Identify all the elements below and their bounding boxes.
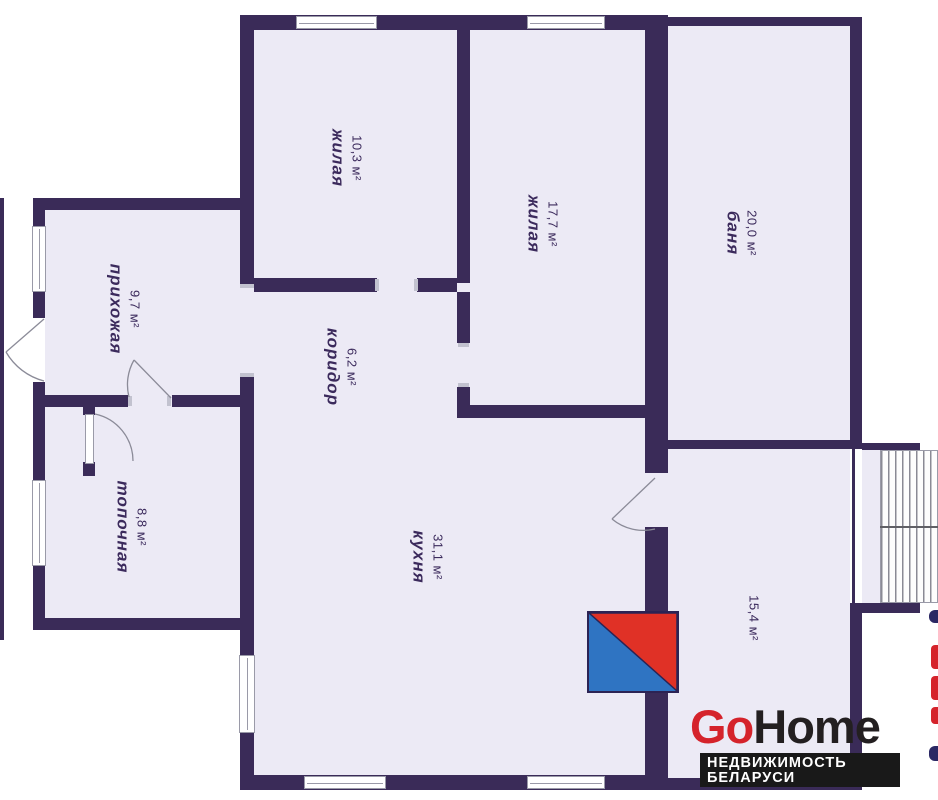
room-name: жилая — [328, 129, 348, 187]
door-jamb — [414, 279, 418, 291]
room-name: жилая — [524, 195, 544, 253]
door-frame — [83, 462, 95, 476]
door-jamb — [458, 343, 469, 347]
room-label-prihozhaya: прихожая 9,7 м² — [106, 264, 143, 355]
room-area: 8,8 м² — [135, 508, 150, 546]
room-label-zhilaya-1: жилая 10,3 м² — [328, 129, 365, 187]
porch-bottom-wall — [862, 603, 920, 613]
door-jamb — [167, 396, 171, 406]
watermark-fragment — [931, 645, 938, 669]
wall — [645, 15, 668, 790]
main-interior — [254, 30, 645, 775]
room-name: кухня — [409, 530, 429, 583]
gohome-wordmark: GoHome — [690, 703, 900, 750]
doorway-prihozhaya-koridor — [240, 287, 254, 375]
room-label-kuhnya: кухня 31,1 м² — [409, 530, 446, 583]
wall — [457, 292, 470, 343]
wall — [172, 395, 240, 407]
room-label-banya: баня 20,0 м² — [723, 210, 760, 256]
room-area: 31,1 м² — [431, 534, 446, 580]
door-jamb — [240, 373, 254, 377]
room-name: топочная — [113, 481, 133, 574]
window — [527, 776, 605, 789]
wall — [33, 198, 254, 210]
room-name: баня — [723, 211, 743, 255]
wall — [656, 440, 862, 449]
room-area: 15,4 м² — [747, 595, 762, 641]
room-label-zhilaya-2: жилая 17,7 м² — [524, 195, 561, 253]
door-jamb — [458, 383, 469, 387]
porch-top-wall — [862, 443, 920, 450]
wall — [457, 405, 668, 418]
room-label-koridor: коридор 6,2 м² — [323, 328, 360, 406]
porch-step-divider — [880, 526, 938, 528]
door-leaf — [85, 414, 94, 464]
window — [304, 776, 386, 789]
window — [296, 16, 377, 29]
wall — [457, 30, 470, 283]
room-area: 9,7 м² — [128, 290, 143, 328]
wall — [33, 618, 254, 630]
room-name: прихожая — [106, 264, 126, 355]
window — [32, 480, 46, 566]
wall — [850, 17, 862, 448]
edge-line — [0, 198, 4, 640]
entrance-doorway — [33, 318, 45, 382]
floorplan: жилая 10,3 м² жилая 17,7 м² баня 20,0 м²… — [0, 0, 938, 800]
door-jamb — [240, 284, 254, 288]
wall-thin — [852, 448, 855, 603]
room-label-topochnaya: топочная 8,8 м² — [113, 481, 150, 574]
door-jamb — [375, 279, 379, 291]
watermark-fragment — [931, 676, 938, 700]
room-area: 10,3 м² — [350, 135, 365, 181]
room-label-154: 15,4 м² — [747, 595, 762, 641]
room-area: 17,7 м² — [546, 201, 561, 247]
logo-tagline: НЕДВИЖИМОСТЬ БЕЛАРУСИ — [700, 753, 900, 787]
room-name: коридор — [323, 328, 343, 406]
watermark-fragment — [929, 746, 938, 761]
wall — [656, 17, 862, 26]
window — [32, 226, 46, 292]
wall — [254, 278, 377, 292]
doorway-kuhnya-room154 — [645, 473, 668, 527]
room-area: 6,2 м² — [345, 348, 360, 386]
gohome-logo: GoHome НЕДВИЖИМОСТЬ БЕЛАРУСИ — [690, 703, 900, 787]
logo-go: Go — [690, 700, 753, 753]
wing-interior — [668, 26, 850, 778]
watermark-fragment — [929, 610, 938, 623]
window — [527, 16, 605, 29]
room-area: 20,0 м² — [745, 210, 760, 256]
window — [239, 655, 255, 733]
porch-landing — [862, 450, 880, 603]
door-jamb — [128, 396, 132, 406]
watermark-fragment — [931, 707, 938, 724]
logo-home: Home — [753, 700, 880, 753]
wall — [417, 278, 457, 292]
wall — [45, 395, 128, 407]
